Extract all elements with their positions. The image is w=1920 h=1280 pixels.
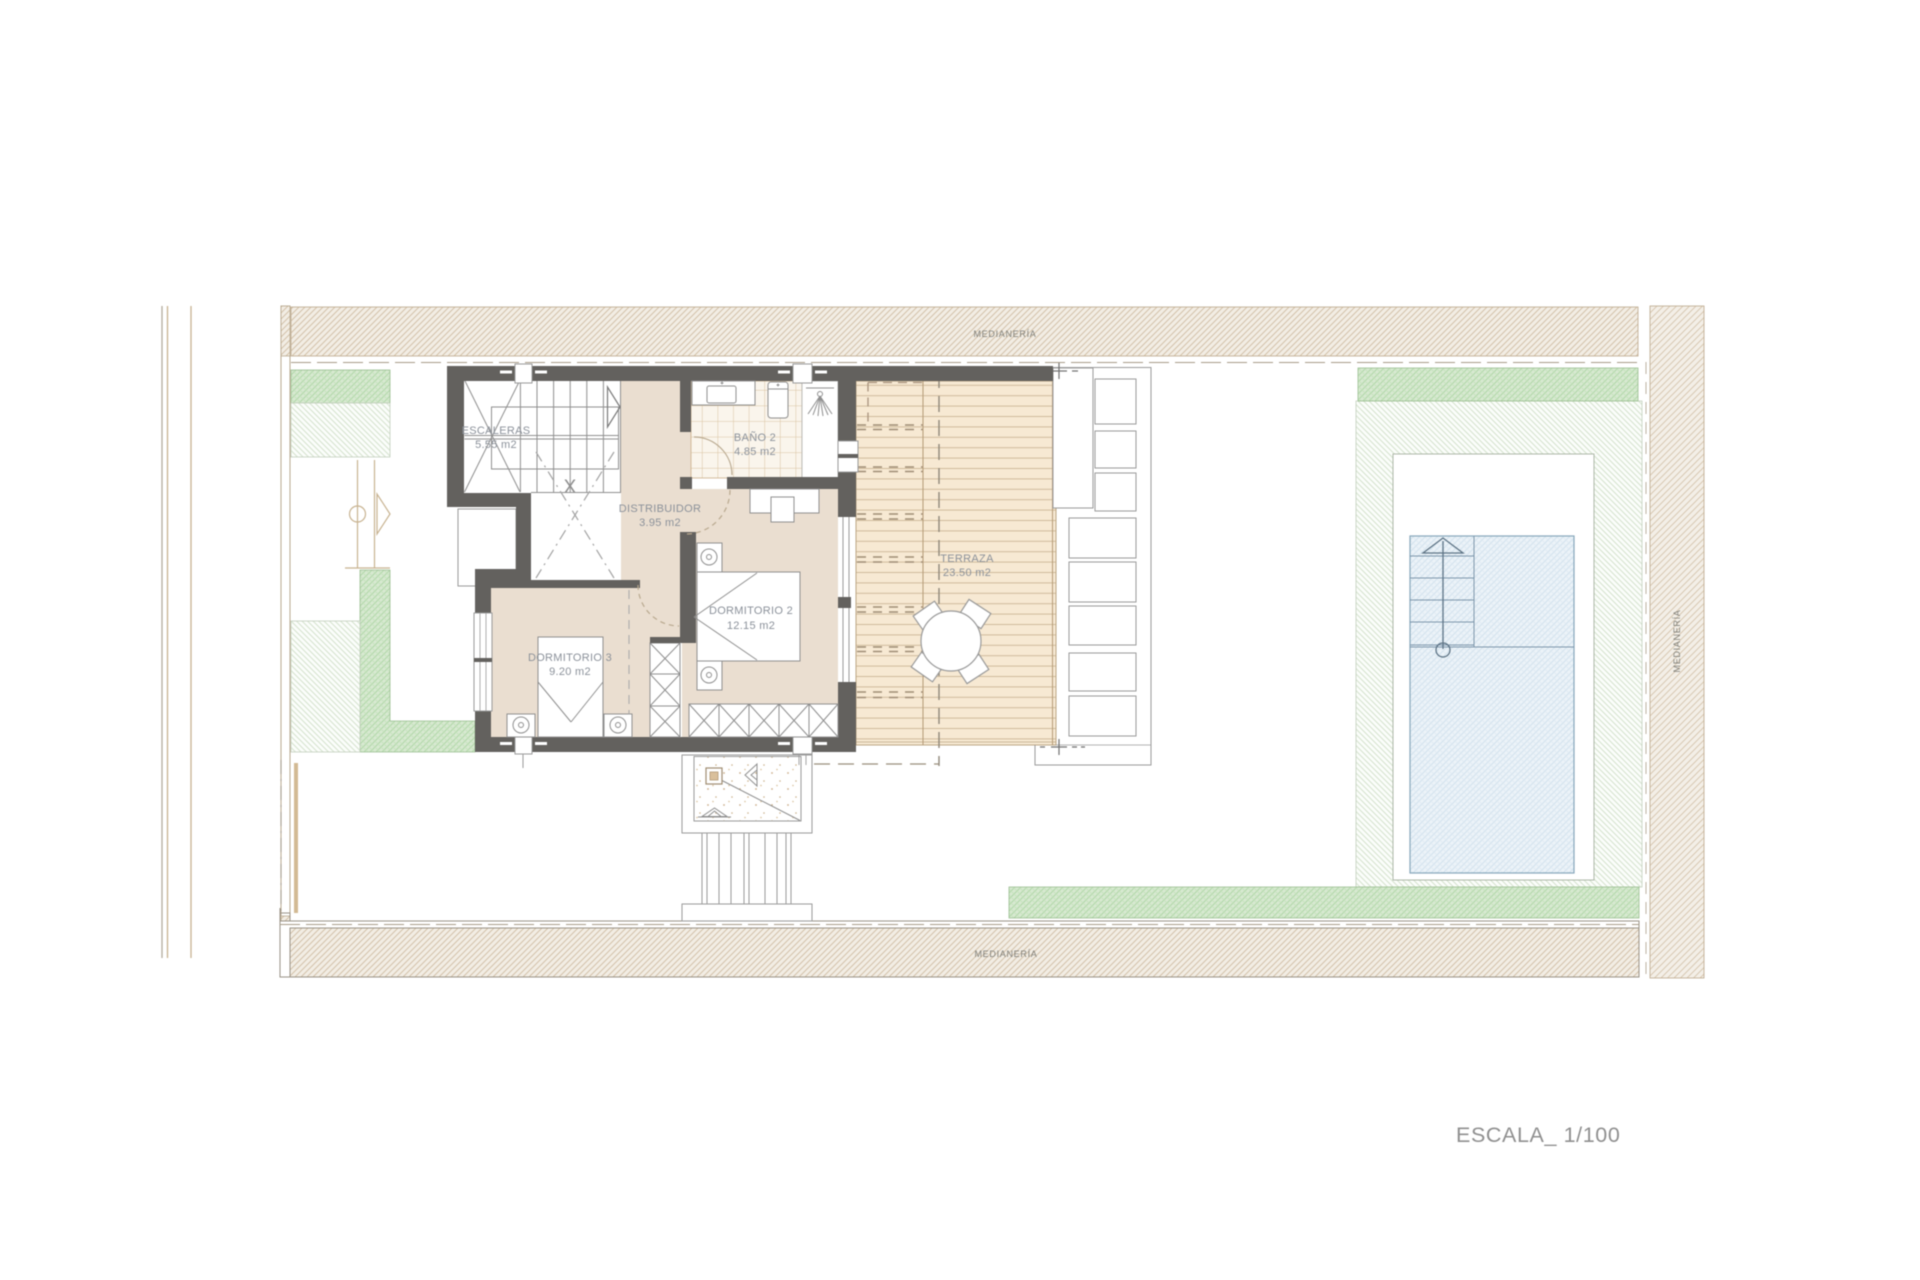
svg-text:4.85 m2: 4.85 m2 bbox=[734, 446, 776, 458]
svg-text:BAÑO 2: BAÑO 2 bbox=[734, 431, 776, 444]
svg-text:23.50 m2: 23.50 m2 bbox=[943, 567, 991, 579]
svg-text:DORMITORIO 2: DORMITORIO 2 bbox=[709, 605, 793, 617]
svg-text:9.20 m2: 9.20 m2 bbox=[549, 666, 591, 678]
svg-text:ESCALERAS: ESCALERAS bbox=[462, 425, 531, 437]
svg-text:ESCALA_ 1/100: ESCALA_ 1/100 bbox=[1456, 1123, 1620, 1147]
svg-text:MEDIANERÍA: MEDIANERÍA bbox=[974, 949, 1037, 959]
svg-text:5.55 m2: 5.55 m2 bbox=[475, 439, 517, 451]
svg-text:X: X bbox=[564, 477, 577, 498]
svg-text:TERRAZA: TERRAZA bbox=[940, 553, 994, 565]
svg-text:DORMITORIO 3: DORMITORIO 3 bbox=[528, 652, 612, 664]
svg-text:3.95 m2: 3.95 m2 bbox=[639, 517, 681, 529]
svg-text:12.15 m2: 12.15 m2 bbox=[727, 620, 775, 632]
svg-text:DISTRIBUIDOR: DISTRIBUIDOR bbox=[619, 503, 701, 515]
svg-text:MEDIANERÍA: MEDIANERÍA bbox=[973, 329, 1036, 339]
svg-text:MEDIANERÍA: MEDIANERÍA bbox=[1672, 609, 1682, 672]
